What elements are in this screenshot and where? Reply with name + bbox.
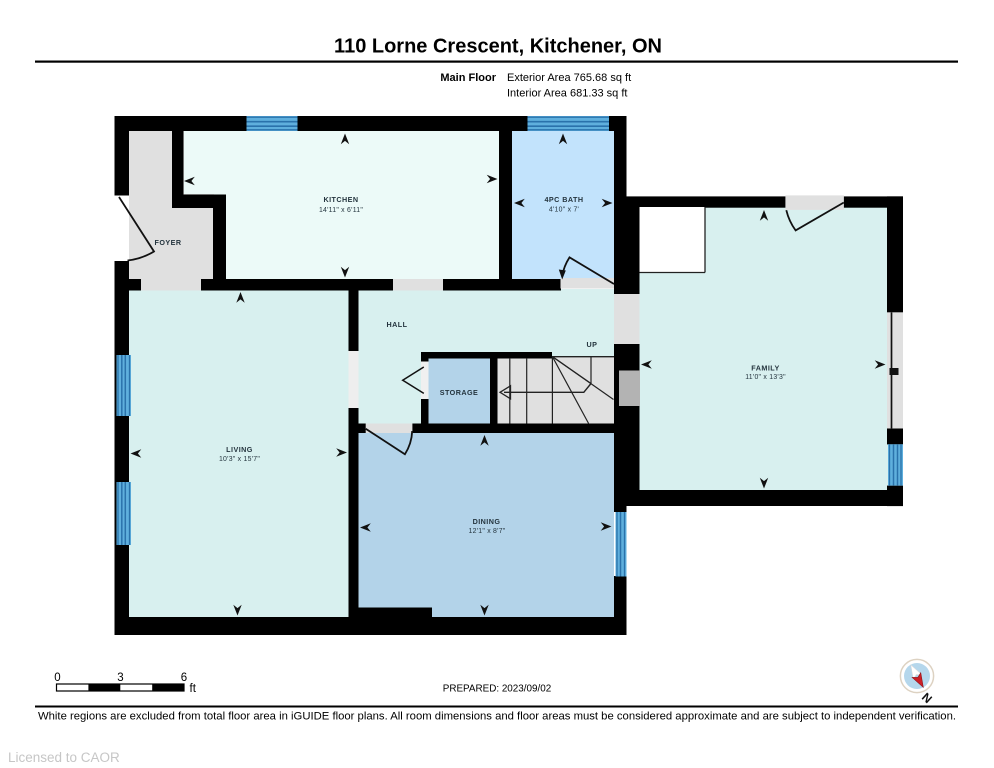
svg-text:LIVING: LIVING xyxy=(226,445,253,454)
svg-text:Interior Area 681.33 sq ft: Interior Area 681.33 sq ft xyxy=(507,88,627,100)
svg-text:14'11" x 6'11": 14'11" x 6'11" xyxy=(319,207,363,214)
svg-text:STORAGE: STORAGE xyxy=(440,388,479,397)
svg-text:3: 3 xyxy=(117,672,123,684)
svg-text:DINING: DINING xyxy=(473,517,501,526)
svg-text:ft: ft xyxy=(190,683,197,695)
svg-text:11'0" x 13'3": 11'0" x 13'3" xyxy=(745,374,786,381)
svg-text:UP: UP xyxy=(587,340,598,349)
svg-text:KITCHEN: KITCHEN xyxy=(323,195,358,204)
svg-text:FAMILY: FAMILY xyxy=(751,364,779,373)
svg-text:Main Floor: Main Floor xyxy=(440,72,496,84)
svg-text:Licensed to CAOR: Licensed to CAOR xyxy=(8,750,120,765)
svg-text:110 Lorne Crescent, Kitchener,: 110 Lorne Crescent, Kitchener, ON xyxy=(334,36,662,58)
svg-text:4PC BATH: 4PC BATH xyxy=(544,195,583,204)
svg-text:HALL: HALL xyxy=(387,320,408,329)
svg-text:10'3" x 15'7": 10'3" x 15'7" xyxy=(219,456,260,463)
svg-text:FOYER: FOYER xyxy=(154,238,181,247)
svg-text:4'10" x 7': 4'10" x 7' xyxy=(549,207,579,214)
svg-text:White regions are excluded fro: White regions are excluded from total fl… xyxy=(38,711,956,723)
svg-text:Exterior Area 765.68 sq ft: Exterior Area 765.68 sq ft xyxy=(507,72,631,84)
svg-text:PREPARED: 2023/09/02: PREPARED: 2023/09/02 xyxy=(443,684,552,695)
svg-text:12'1" x 8'7": 12'1" x 8'7" xyxy=(469,528,506,535)
svg-text:0: 0 xyxy=(54,672,60,684)
svg-text:6: 6 xyxy=(181,672,187,684)
